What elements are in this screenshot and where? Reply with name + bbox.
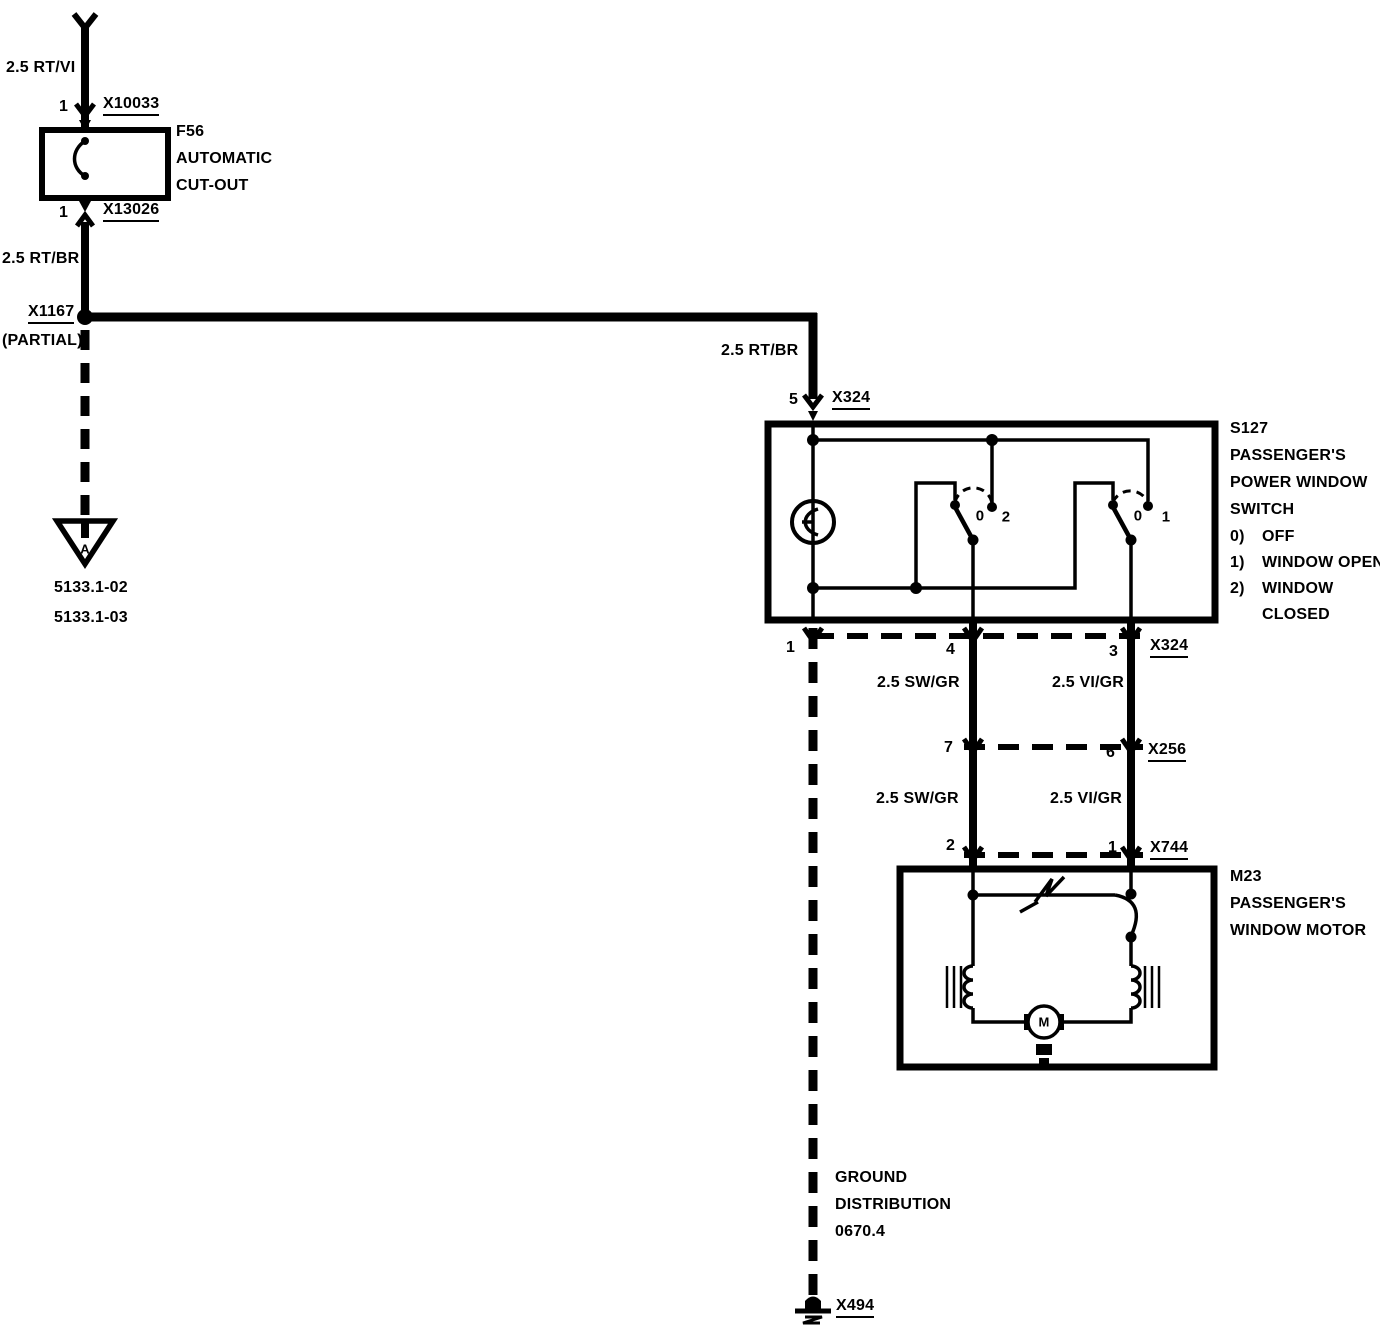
m23-name-line1: PASSENGER'S <box>1230 896 1346 912</box>
ground-hatch-icon <box>803 1317 822 1323</box>
s127-sw2-lever <box>1113 507 1131 540</box>
s127-sw1-arc <box>955 488 992 503</box>
s127-name-line1: PASSENGER'S <box>1230 448 1346 464</box>
fuse-id-label: F56 <box>176 124 204 140</box>
x1167-junction-art <box>77 309 817 516</box>
offpage-ref-1: 5133.1-02 <box>54 580 128 596</box>
wire-end-arrow-top-icon <box>74 14 96 28</box>
wire-label-rt-vi: 2.5 RT/VI <box>6 60 75 76</box>
thermal-breaker-tail <box>1020 902 1038 912</box>
thermal-breaker-symbol <box>1035 877 1064 902</box>
fuse-name-line1: AUTOMATIC <box>176 151 272 167</box>
pin-label-x744-2: 2 <box>946 838 955 854</box>
wire-label-rt-br-left: 2.5 RT/BR <box>2 251 79 267</box>
wiring-diagram-art <box>0 0 1380 1328</box>
connector-label-x324-top: X324 <box>832 390 870 410</box>
motor-case-ground-foot-icon <box>1039 1058 1049 1065</box>
connector-x324-arrow-icon <box>808 411 818 421</box>
connector-label-x494: X494 <box>836 1298 874 1318</box>
s127-bottom-rail <box>813 483 1113 588</box>
s127-legend-text-0: OFF <box>1262 529 1295 545</box>
wire-label-rt-br-right: 2.5 RT/BR <box>721 343 798 359</box>
connector-label-x744: X744 <box>1150 840 1188 860</box>
s127-legend-key-1: 1) <box>1230 555 1245 571</box>
s127-name-line2: POWER WINDOW <box>1230 475 1368 491</box>
wiring-diagram-page: 2.5 RT/VI 1 X10033 F56 AUTOMATIC CUT-OUT… <box>0 0 1380 1328</box>
wire-label-sw-gr-upper: 2.5 SW/GR <box>877 675 960 691</box>
s127-legend-key-0: 0) <box>1230 529 1245 545</box>
s127-sw1-feed-u <box>916 483 955 588</box>
ground-ref-line1: GROUND <box>835 1170 907 1186</box>
ground-dome-icon <box>805 1297 821 1310</box>
fuse-terminal-dot-bottom <box>81 172 89 180</box>
m23-right-bottom <box>1062 1008 1131 1022</box>
m23-left-coil <box>964 966 973 1008</box>
offpage-arrow-letter: A <box>80 543 90 556</box>
wire-label-sw-gr-lower: 2.5 SW/GR <box>876 791 959 807</box>
m23-motor-art <box>900 869 1214 1067</box>
fuse-name-line2: CUT-OUT <box>176 178 249 194</box>
contact-label-sw2-open: 1 <box>1162 510 1171 525</box>
x494-ground-art <box>795 1297 831 1324</box>
ground-ref-line2: DISTRIBUTION <box>835 1197 951 1213</box>
s127-sw2-arc <box>1113 491 1148 503</box>
contact-label-sw1-closed: 2 <box>1002 510 1011 525</box>
pin-label-x13026: 1 <box>59 205 68 221</box>
s127-name-line3: SWITCH <box>1230 502 1294 518</box>
pin-label-x256-6: 6 <box>1106 745 1115 761</box>
x1167-junction-dot <box>77 309 93 325</box>
s127-legend-text-3: CLOSED <box>1262 607 1330 623</box>
junction-note-partial: (PARTIAL) <box>2 333 83 349</box>
pin-label-x324-4: 4 <box>946 642 955 658</box>
connector-label-x13026: X13026 <box>103 202 159 222</box>
offpage-ref-2: 5133.1-03 <box>54 610 128 626</box>
s127-legend-key-2: 2) <box>1230 581 1245 597</box>
pin-label-x744-1: 1 <box>1108 840 1117 856</box>
fuse-element-symbol <box>75 141 86 176</box>
pin-label-x324-1: 1 <box>786 640 795 656</box>
fuse-terminal-dot-top <box>81 137 89 145</box>
connector-x13026-arrow-icon <box>79 201 91 212</box>
wire-label-vi-gr-lower: 2.5 VI/GR <box>1050 791 1122 807</box>
fuse-f56-box <box>42 130 168 198</box>
m23-right-coil <box>1131 966 1140 1008</box>
junction-label-x1167: X1167 <box>28 304 74 324</box>
pin-label-x256-7: 7 <box>944 740 953 756</box>
wire-label-vi-gr-upper: 2.5 VI/GR <box>1052 675 1124 691</box>
connector-label-x324-bottom: X324 <box>1150 638 1188 658</box>
m23-core-lines <box>947 966 1159 1008</box>
s127-switch-art <box>768 424 1215 620</box>
s127-id-label: S127 <box>1230 421 1268 437</box>
connector-label-x10033: X10033 <box>103 96 159 116</box>
motor-case-ground-icon <box>1036 1044 1052 1055</box>
pin-label-x10033: 1 <box>59 99 68 115</box>
m23-left-bottom <box>973 1008 1026 1022</box>
connector-label-x256: X256 <box>1148 742 1186 762</box>
contact-label-sw1-off: 0 <box>976 509 985 524</box>
contact-label-sw2-off: 0 <box>1134 509 1143 524</box>
pin-label-x324-top: 5 <box>789 392 798 408</box>
m23-id-label: M23 <box>1230 869 1262 885</box>
s127-top-rail <box>813 440 1148 501</box>
m23-hook-arc <box>1115 895 1136 936</box>
ground-ref-line3: 0670.4 <box>835 1224 885 1240</box>
m23-name-line2: WINDOW MOTOR <box>1230 923 1366 939</box>
pin-label-x324-3: 3 <box>1109 644 1118 660</box>
motor-letter: M <box>1038 1016 1049 1029</box>
s127-legend-text-2: WINDOW <box>1262 581 1333 597</box>
s127-sw1-lever <box>955 507 973 540</box>
s127-legend-text-1: WINDOW OPEN <box>1262 555 1380 571</box>
